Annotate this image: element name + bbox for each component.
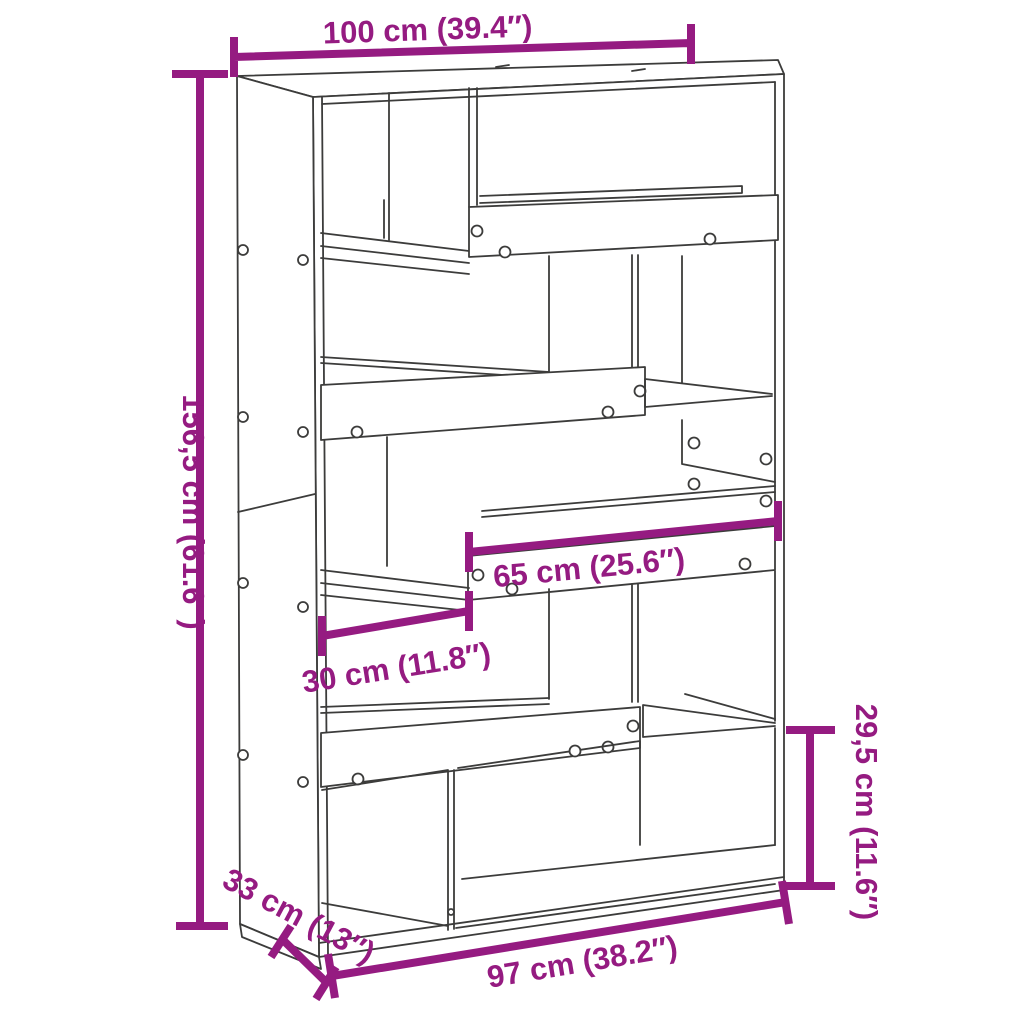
dimension-shelf-height-29-label: 29,5 cm (11.6″): [849, 704, 884, 921]
bookcase-drawing: [237, 60, 784, 969]
dimension-top-width-label: 100 cm (39.4″): [322, 8, 533, 50]
diagram-canvas: 100 cm (39.4″) 156,5 cm (61.6″) 65 cm (2…: [0, 0, 1024, 1024]
dimension-height-label: 156,5 cm (61.6″): [176, 394, 211, 629]
dimension-height: 156,5 cm (61.6″): [172, 74, 228, 930]
dimension-shelf-height-29: 29,5 cm (11.6″): [786, 704, 884, 921]
furniture-dimension-diagram: 100 cm (39.4″) 156,5 cm (61.6″) 65 cm (2…: [0, 0, 1024, 1024]
